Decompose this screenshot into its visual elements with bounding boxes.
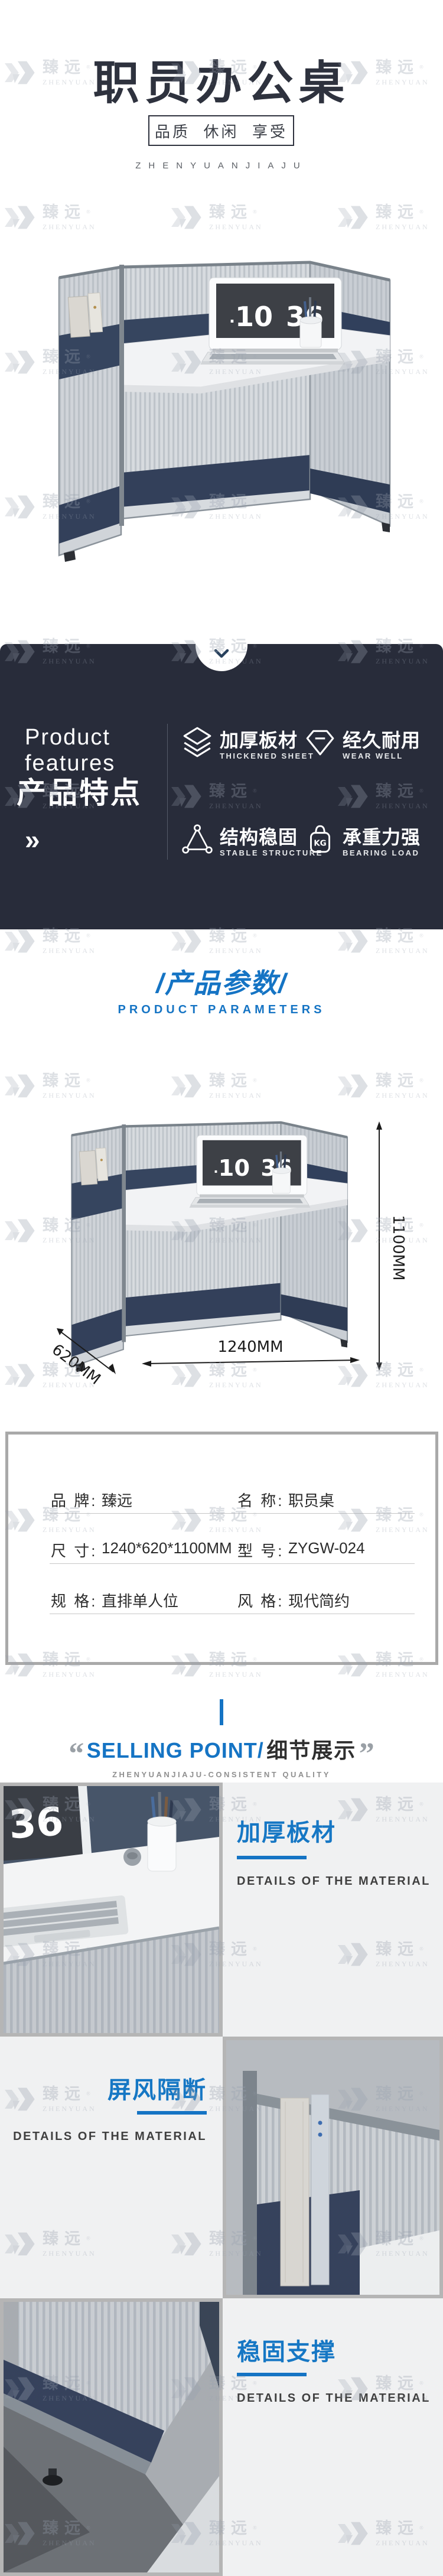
accent-underline: [237, 2373, 307, 2376]
detail-panel-thickened-sheet: 加厚板材 DETAILS OF THE MATERIAL: [223, 1783, 443, 2037]
zhenyuan-logo-icon: [5, 349, 37, 376]
detail-photo-stable-support: [0, 2298, 223, 2576]
detail-panel-screen-partition: 屏风隔断 DETAILS OF THE MATERIAL: [0, 2037, 223, 2298]
params-title-cn: /产品参数/: [0, 962, 443, 1001]
spec-row-spec: 规 格: 直排单人位 风 格: 现代简约: [8, 1589, 435, 1616]
page-title: 职员办公桌: [0, 46, 443, 112]
spec-row-size: 尺 寸: 1240*620*1100MM 型 号: ZYGW-024: [8, 1539, 435, 1566]
scroll-notch: [196, 644, 247, 671]
zhenyuan-logo-icon: [5, 204, 37, 231]
zhenyuan-logo-icon: [5, 928, 37, 955]
gem-icon: [304, 726, 337, 759]
quote-close: ”: [359, 1737, 374, 1771]
quote-open: “: [69, 1737, 84, 1771]
svg-text:36: 36: [8, 1798, 65, 1848]
spec-row-brand: 品 牌: 臻远 名 称: 职员桌: [8, 1489, 435, 1516]
divider: [50, 1513, 415, 1514]
zhenyuan-logo-icon: [171, 928, 203, 955]
detail-photo-thickened-sheet: 36: [0, 1783, 223, 2037]
feature-wear-well: 经久耐用 WEAR WELL: [304, 726, 439, 763]
zhenyuan-logo-icon: [338, 928, 370, 955]
subtitle-box: 品质 休闲 享受: [148, 115, 294, 146]
selling-point-title: “ SELLING POINT/ 细节展示 ”: [0, 1733, 443, 1771]
product-features-section: Product features 产品特点 » 加厚板材 THICKENED S…: [0, 644, 443, 929]
double-chevron-icon: »: [25, 824, 40, 856]
hero-product-image: [35, 219, 408, 567]
selling-point-caption: ZHENYUANJIAJU-CONSISTENT QUALITY: [0, 1770, 443, 1779]
detail-panel-stable-support: 稳固支撑 DETAILS OF THE MATERIAL: [223, 2298, 443, 2576]
divider: [50, 1563, 415, 1564]
selling-point-cn: 细节展示: [266, 1738, 356, 1762]
chevron-down-icon: [211, 648, 232, 662]
divider: [167, 724, 168, 860]
feature-stable-structure: 结构稳固 STABLE STRUCTURE: [181, 822, 317, 860]
triangle-icon: [181, 822, 214, 856]
dimension-arrows: 1100MM 1240MM 620MM: [0, 1081, 443, 1400]
divider: [50, 1614, 415, 1614]
dimension-height: 1100MM: [389, 1215, 407, 1280]
brand-latin: ZHENYUANJIAJU: [0, 161, 443, 171]
feature-thickened-sheet: 加厚板材 THICKENED SHEET: [181, 726, 317, 763]
accent-underline: [137, 2111, 207, 2115]
dimension-depth: 620MM: [48, 1341, 104, 1388]
product-detail-page: 职员办公桌 品质 休闲 享受 ZHENYUANJIAJU Product fea…: [0, 0, 443, 2576]
spec-table: 品 牌: 臻远 名 称: 职员桌 尺 寸: 1240*620*1100MM 型 …: [5, 1432, 438, 1665]
features-title-cn: 产品特点: [17, 769, 142, 812]
brand-watermark: 臻远®ZHENYUAN: [338, 928, 443, 955]
layers-icon: [181, 726, 214, 759]
dimension-width: 1240MM: [217, 1338, 283, 1356]
weight-kg-icon: KG: [304, 822, 337, 856]
detail-photo-screen-partition: [223, 2037, 443, 2298]
zhenyuan-logo-icon: [5, 493, 37, 521]
accent-underline: [237, 1856, 307, 1859]
params-title-en: PRODUCT PARAMETERS: [0, 1003, 443, 1017]
features-title-en: Product features: [25, 724, 161, 776]
brand-watermark: 臻远®ZHENYUAN: [5, 928, 117, 955]
svg-text:KG: KG: [314, 838, 327, 848]
selling-point-en: SELLING POINT/: [87, 1738, 264, 1762]
subtitle-text: 品质 休闲 享受: [155, 120, 288, 142]
books: [281, 2094, 329, 2286]
brand-watermark: 臻远®ZHENYUAN: [171, 928, 284, 955]
feature-bearing-load: KG 承重力强 BEARING LOAD: [304, 822, 439, 860]
accent-bar: [220, 1699, 223, 1725]
